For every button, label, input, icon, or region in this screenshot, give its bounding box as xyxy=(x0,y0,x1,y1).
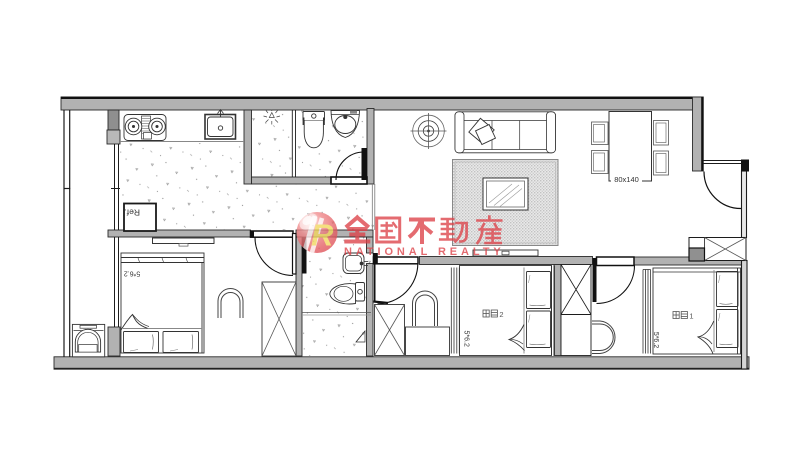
svg-text:5*6.2: 5*6.2 xyxy=(652,332,659,348)
svg-text:Ref.: Ref. xyxy=(124,208,140,218)
svg-text:80x140: 80x140 xyxy=(614,175,639,184)
svg-text:NATIONAL REALTY: NATIONAL REALTY xyxy=(344,246,505,258)
svg-text:2: 2 xyxy=(499,310,503,319)
svg-text:5*6.2: 5*6.2 xyxy=(124,270,140,277)
svg-text:1: 1 xyxy=(689,312,693,321)
svg-text:5*6.2: 5*6.2 xyxy=(463,331,470,347)
svg-text:R: R xyxy=(311,218,334,253)
